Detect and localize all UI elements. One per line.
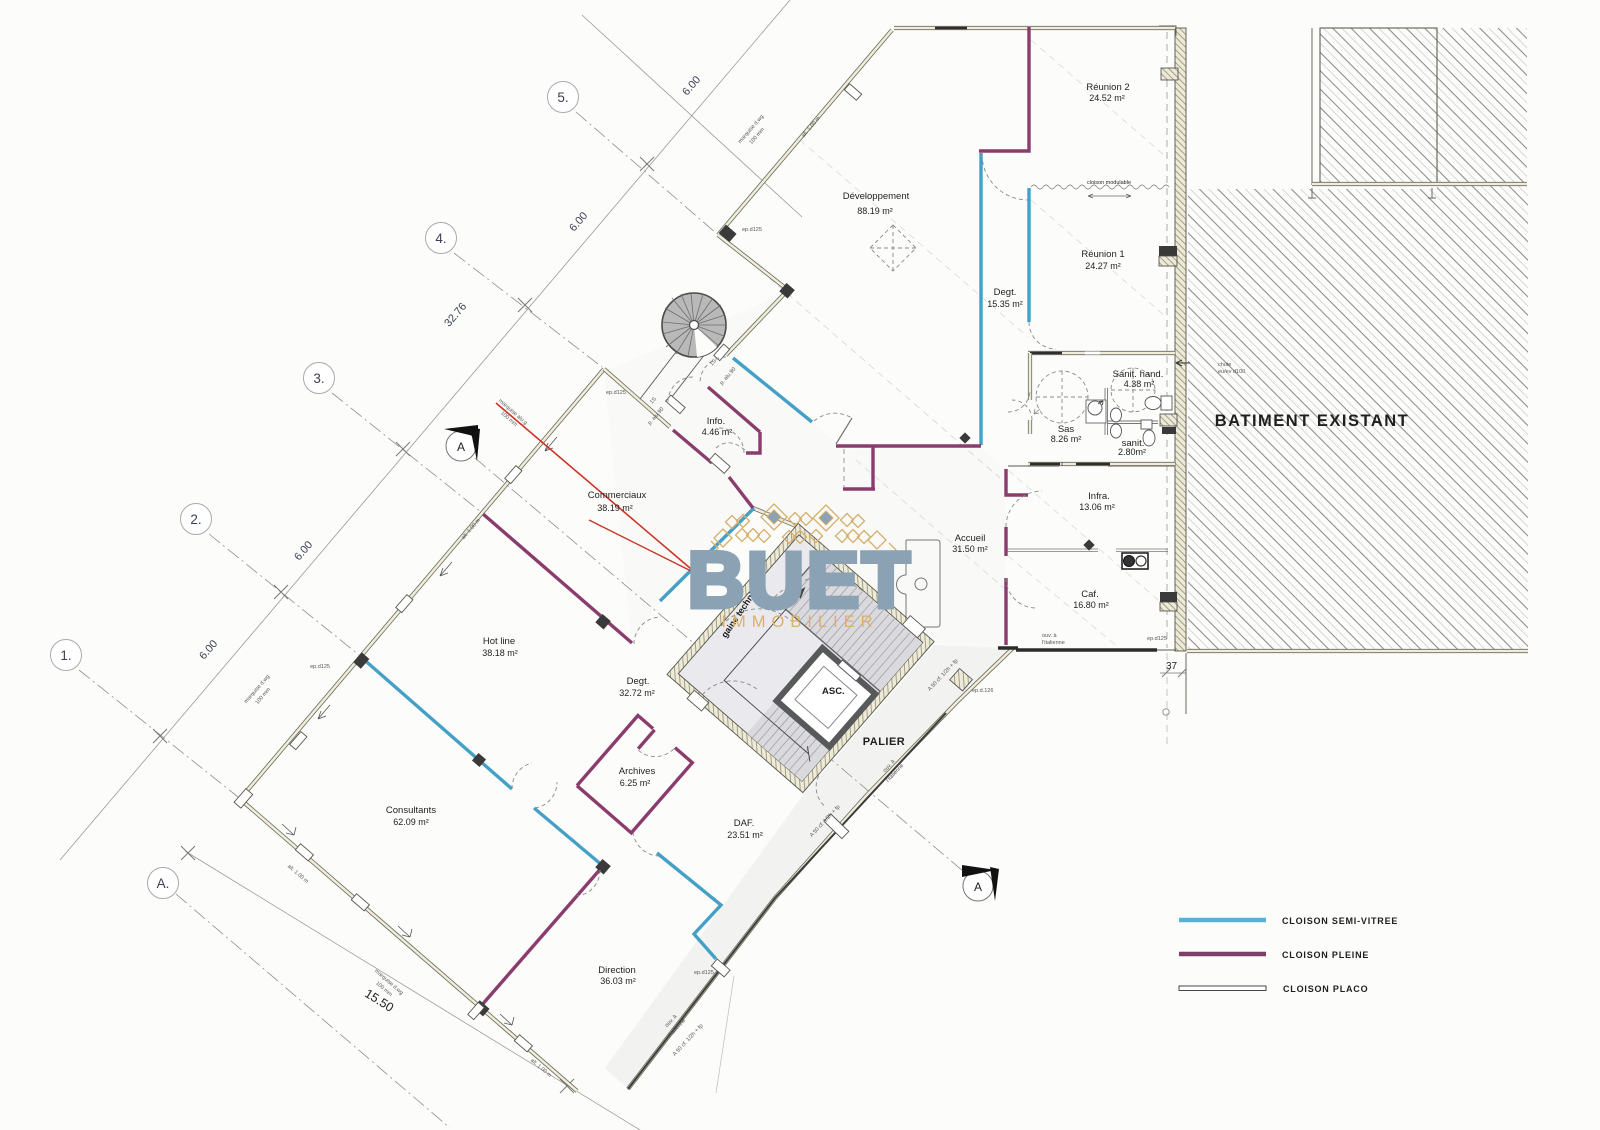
- svg-text:Consultants: Consultants: [386, 805, 436, 816]
- svg-text:ep.d125: ep.d125: [694, 970, 714, 976]
- svg-text:5.: 5.: [557, 90, 568, 105]
- svg-text:Développement: Développement: [843, 191, 910, 202]
- svg-text:Infra.: Infra.: [1088, 491, 1110, 502]
- svg-text:cloison modulable: cloison modulable: [1087, 180, 1131, 186]
- svg-text:ep.d125: ep.d125: [742, 227, 762, 233]
- svg-text:32.72 m²: 32.72 m²: [619, 688, 655, 698]
- svg-text:DAF.: DAF.: [734, 818, 755, 829]
- svg-text:CLOISON SEMI-VITREE: CLOISON SEMI-VITREE: [1282, 916, 1398, 926]
- svg-text:62.09 m²: 62.09 m²: [393, 817, 429, 827]
- svg-text:4.38 m²: 4.38 m²: [1124, 379, 1155, 389]
- svg-text:38.18 m²: 38.18 m²: [482, 648, 518, 658]
- svg-text:8.26 m²: 8.26 m²: [1051, 434, 1082, 444]
- svg-text:31.50 m²: 31.50 m²: [952, 544, 988, 554]
- svg-text:PALIER: PALIER: [863, 736, 906, 748]
- svg-text:CLOISON PLEINE: CLOISON PLEINE: [1282, 950, 1369, 960]
- svg-text:24.52 m²: 24.52 m²: [1089, 93, 1125, 103]
- svg-text:Degt.: Degt.: [627, 676, 650, 687]
- svg-text:ep.d125: ep.d125: [310, 664, 330, 670]
- svg-text:Commerciaux: Commerciaux: [588, 490, 647, 501]
- svg-text:Hot line: Hot line: [483, 636, 515, 647]
- svg-text:chute: chute: [1218, 362, 1231, 368]
- svg-text:4.46 m²: 4.46 m²: [702, 427, 733, 437]
- svg-text:24.27 m²: 24.27 m²: [1085, 261, 1121, 271]
- svg-text:6.25 m²: 6.25 m²: [620, 778, 651, 788]
- svg-text:A: A: [457, 440, 465, 454]
- svg-text:2.80m²: 2.80m²: [1118, 447, 1146, 457]
- svg-text:IMMOBILIER: IMMOBILIER: [721, 613, 878, 631]
- svg-text:BUET: BUET: [687, 535, 912, 624]
- svg-text:l'italienne: l'italienne: [1042, 640, 1065, 646]
- svg-text:eu/ev d100: eu/ev d100: [1218, 369, 1245, 375]
- svg-text:1.: 1.: [60, 648, 71, 663]
- svg-text:36.03 m²: 36.03 m²: [600, 976, 636, 986]
- svg-text:2.: 2.: [190, 512, 201, 527]
- svg-text:ouv. à: ouv. à: [1042, 633, 1058, 639]
- svg-text:Archives: Archives: [619, 766, 656, 777]
- svg-text:37: 37: [1166, 661, 1178, 672]
- svg-text:Accueil: Accueil: [955, 533, 986, 544]
- svg-text:15.35 m²: 15.35 m²: [987, 299, 1023, 309]
- svg-text:Degt.: Degt.: [994, 287, 1017, 298]
- svg-text:3.: 3.: [313, 371, 324, 386]
- svg-text:38.19 m²: 38.19 m²: [597, 503, 633, 513]
- svg-text:ep.d.126: ep.d.126: [972, 688, 993, 694]
- svg-text:ep.d125: ep.d125: [606, 390, 626, 396]
- svg-text:4.: 4.: [435, 231, 446, 246]
- svg-text:CLOISON PLACO: CLOISON PLACO: [1283, 984, 1368, 994]
- svg-text:16.80 m²: 16.80 m²: [1073, 600, 1109, 610]
- svg-text:88.19 m²: 88.19 m²: [857, 206, 893, 216]
- svg-text:A.: A.: [157, 876, 170, 891]
- svg-text:13.06 m²: 13.06 m²: [1079, 502, 1115, 512]
- svg-text:Caf.: Caf.: [1081, 589, 1098, 600]
- svg-text:23.51 m²: 23.51 m²: [727, 830, 763, 840]
- svg-text:ep.d125: ep.d125: [1147, 636, 1167, 642]
- svg-text:BATIMENT EXISTANT: BATIMENT EXISTANT: [1215, 412, 1409, 430]
- svg-text:A: A: [974, 880, 982, 894]
- svg-text:Info.: Info.: [707, 416, 726, 427]
- svg-text:ASC.: ASC.: [822, 686, 845, 697]
- svg-text:Réunion 1: Réunion 1: [1081, 249, 1124, 260]
- svg-text:Réunion 2: Réunion 2: [1086, 82, 1129, 93]
- svg-text:Direction: Direction: [598, 965, 636, 976]
